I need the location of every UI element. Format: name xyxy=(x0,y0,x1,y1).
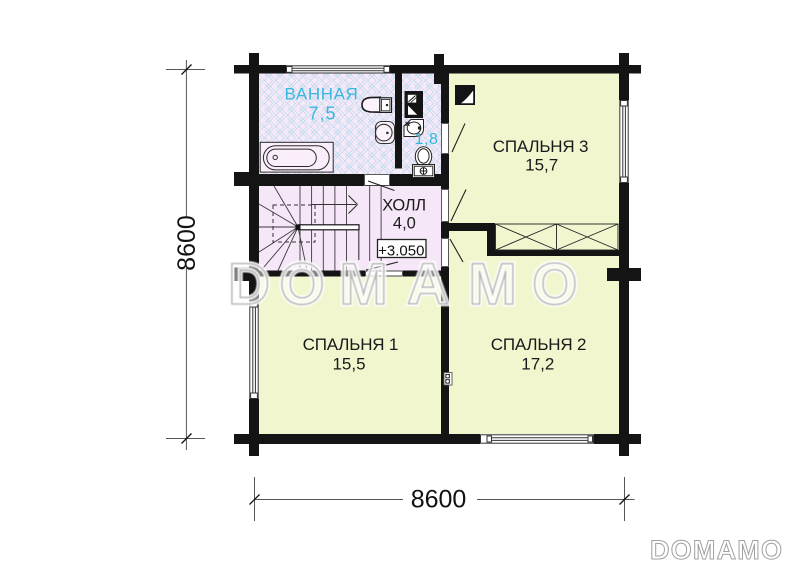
svg-text:17,2: 17,2 xyxy=(521,355,554,374)
svg-text:15,5: 15,5 xyxy=(332,355,365,374)
svg-text:СПАЛЬНЯ 3: СПАЛЬНЯ 3 xyxy=(493,137,588,156)
svg-text:1,8: 1,8 xyxy=(415,131,439,148)
svg-text:4,0: 4,0 xyxy=(393,214,416,232)
svg-text:СПАЛЬНЯ 2: СПАЛЬНЯ 2 xyxy=(491,335,586,354)
svg-text:ВАННАЯ: ВАННАЯ xyxy=(285,85,359,104)
svg-text:8600: 8600 xyxy=(411,485,467,513)
svg-text:СПАЛЬНЯ 1: СПАЛЬНЯ 1 xyxy=(303,335,398,354)
svg-text:15,7: 15,7 xyxy=(525,156,558,175)
svg-text:ХОЛЛ: ХОЛЛ xyxy=(382,196,426,214)
svg-text:DOMAMO: DOMAMO xyxy=(650,535,783,565)
svg-text:7,5: 7,5 xyxy=(308,104,336,124)
svg-text:8600: 8600 xyxy=(173,215,201,271)
